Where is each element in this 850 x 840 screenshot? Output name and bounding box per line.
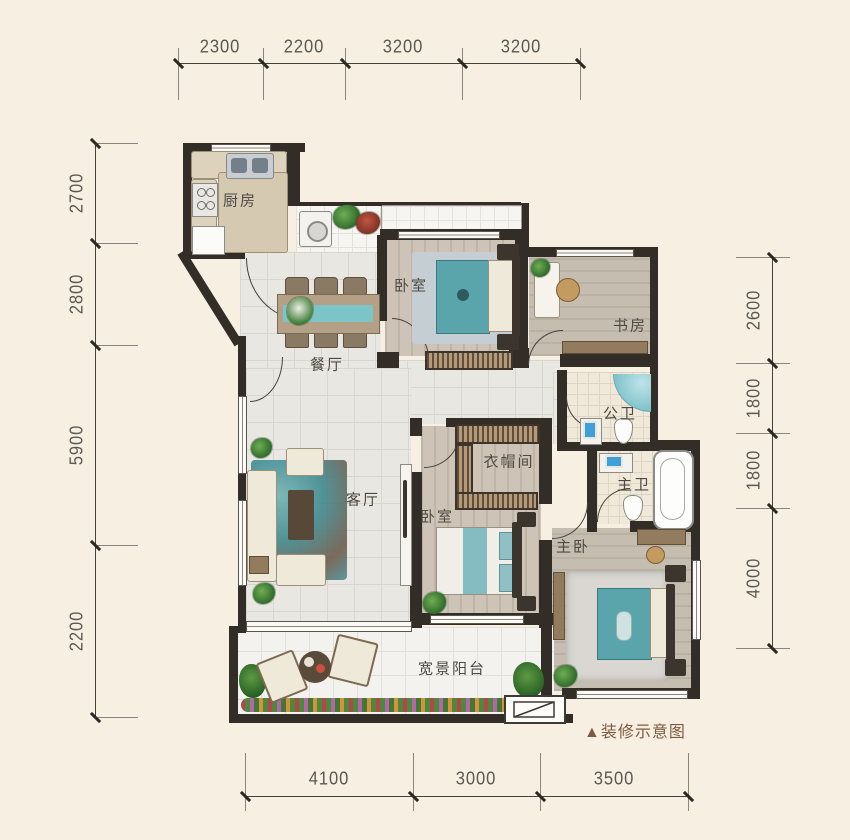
cloakroom-wardrobe-top xyxy=(455,424,540,444)
kitchen-fridge xyxy=(192,226,225,255)
master-bath-sink xyxy=(605,455,623,468)
dim-ext xyxy=(736,648,790,649)
dim-top-4: 3200 xyxy=(501,37,542,58)
dim-bottom-3: 3500 xyxy=(594,769,635,790)
guest-bath-sink xyxy=(583,421,597,439)
burner-icon xyxy=(206,201,215,210)
master-nightstand-top xyxy=(665,565,686,582)
caption-decoration-schematic: ▲装修示意图 xyxy=(584,718,686,742)
dim-ext xyxy=(580,48,581,100)
wall-right-upper xyxy=(650,247,658,447)
burner-icon xyxy=(206,188,215,197)
bedroom2-bed-runner xyxy=(463,528,487,594)
label-dining: 餐厅 xyxy=(310,354,344,375)
dim-ext xyxy=(736,257,790,258)
label-bedroom1: 卧室 xyxy=(394,275,428,296)
dining-chair xyxy=(314,277,338,295)
dim-ext xyxy=(413,753,414,811)
dim-ext xyxy=(736,363,790,364)
sink-basin-right xyxy=(252,158,268,173)
master-window-bottom xyxy=(576,690,688,699)
duct-symbol xyxy=(504,695,566,724)
dim-line-bottom xyxy=(245,796,688,797)
dim-bottom-1: 4100 xyxy=(309,769,350,790)
bedroom1-headboard xyxy=(512,256,520,336)
dim-right-2: 1800 xyxy=(744,378,765,419)
wall-bedroom2-master-a xyxy=(539,418,552,504)
balcony-plate-icon xyxy=(316,664,325,673)
label-living: 客厅 xyxy=(346,489,380,510)
cloakroom-wardrobe-bottom xyxy=(455,492,538,510)
dim-ext xyxy=(95,345,138,346)
label-guest-bath: 公卫 xyxy=(603,403,637,424)
bedroom1-bay-ledge xyxy=(381,205,522,232)
bedroom1-pillows xyxy=(488,260,514,332)
kitchen-island xyxy=(218,172,288,253)
dim-top-2: 2200 xyxy=(284,37,325,58)
kitchen-sink xyxy=(226,153,274,179)
dim-top-3: 3200 xyxy=(383,37,424,58)
bedroom2-nightstand-bottom xyxy=(517,596,536,611)
wall-masterbath-left xyxy=(587,450,597,530)
dining-chair xyxy=(343,277,367,295)
dim-left-2: 2800 xyxy=(67,274,88,315)
dining-chair xyxy=(285,277,309,295)
master-headboard xyxy=(666,584,675,662)
label-cloakroom: 衣帽间 xyxy=(483,451,534,472)
dim-right-1: 2600 xyxy=(744,290,765,331)
bathtub xyxy=(653,450,694,530)
master-window-right xyxy=(692,560,701,640)
bedroom2-window xyxy=(430,615,524,624)
bedroom2-bed xyxy=(436,527,516,595)
dim-right-4: 4000 xyxy=(744,558,765,599)
dim-ext xyxy=(245,753,246,811)
burner-icon xyxy=(197,201,206,210)
dim-line-right xyxy=(772,257,773,648)
dim-line-left xyxy=(95,143,96,717)
master-bed xyxy=(597,588,652,660)
coffee-table xyxy=(288,490,314,540)
dim-ext xyxy=(95,717,138,718)
wall-service-top xyxy=(296,202,382,206)
bedroom2-pillow xyxy=(499,532,513,560)
living-window-1 xyxy=(238,396,247,474)
dim-left-3: 5900 xyxy=(67,425,88,466)
label-study: 书房 xyxy=(613,315,647,336)
study-window xyxy=(556,249,634,257)
label-balcony: 宽景阳台 xyxy=(418,658,486,679)
wall-masterbath-bottom-a xyxy=(587,521,597,532)
dim-ext xyxy=(95,545,138,546)
bedroom1-nightstand-bottom xyxy=(497,334,519,350)
dim-ext xyxy=(95,143,138,144)
dim-ext xyxy=(462,48,463,100)
wall-diagonal xyxy=(177,250,242,346)
dim-ext xyxy=(95,243,138,244)
master-bed-accent xyxy=(616,611,632,641)
washer-drum-icon xyxy=(307,221,328,242)
living-side-table xyxy=(249,556,269,574)
dim-left-4: 2200 xyxy=(67,611,88,652)
living-armchair-bottom xyxy=(276,554,326,586)
dim-bottom-2: 3000 xyxy=(456,769,497,790)
washing-machine xyxy=(299,211,332,247)
balcony-flowerbed xyxy=(241,698,549,712)
bedroom1-bed xyxy=(436,260,490,334)
balcony-plate-icon xyxy=(304,657,314,667)
balcony-bush-right xyxy=(513,662,544,698)
wall-living-left xyxy=(238,336,246,633)
bathtub-inner xyxy=(660,458,685,520)
label-kitchen: 厨房 xyxy=(223,190,257,211)
kitchen-stove xyxy=(192,183,218,217)
balcony-table xyxy=(299,651,331,683)
bed-pillow-accent xyxy=(457,289,469,301)
dim-top-1: 2300 xyxy=(200,37,241,58)
dim-ext xyxy=(688,753,689,811)
master-tv-console xyxy=(553,572,565,640)
tv-icon xyxy=(403,480,407,538)
wall-bedroom2-left-a xyxy=(410,418,422,436)
master-dresser xyxy=(637,529,686,545)
dim-right-3: 1800 xyxy=(744,450,765,491)
bedroom1-window xyxy=(398,231,500,239)
wall-kitchen-right xyxy=(287,143,300,206)
wall-study-bottom xyxy=(560,354,658,367)
dim-ext xyxy=(263,48,264,100)
burner-icon xyxy=(197,188,206,197)
label-master-bath: 主卫 xyxy=(617,474,651,495)
dim-ext xyxy=(736,508,790,509)
dim-ext xyxy=(178,48,179,100)
label-master-bedroom: 主卧 xyxy=(556,536,590,557)
sink-basin-left xyxy=(231,158,247,173)
duct-diagonal-icon xyxy=(506,697,564,722)
cloakroom-wardrobe-left xyxy=(455,444,473,497)
balcony-sliding-door xyxy=(246,621,412,632)
dim-line-top xyxy=(178,63,580,64)
master-dresser-chair xyxy=(646,546,665,564)
dim-ext xyxy=(345,48,346,100)
bedroom2-headboard xyxy=(512,522,522,598)
study-sideboard xyxy=(562,341,648,354)
dim-left-1: 2700 xyxy=(67,173,88,214)
floor-plan: 厨房 卧室 书房 餐厅 公卫 衣帽间 主卫 客厅 卧室 主卧 宽景阳台 ▲装修示… xyxy=(0,0,850,840)
dim-ext xyxy=(540,753,541,811)
bedroom1-wardrobe xyxy=(425,351,513,370)
dim-ext xyxy=(736,433,790,434)
study-chair xyxy=(556,278,580,302)
living-armchair-top xyxy=(286,448,324,476)
wall-balcony-left xyxy=(229,626,238,723)
label-bedroom2: 卧室 xyxy=(420,506,454,527)
living-window-2 xyxy=(238,500,247,586)
bedroom2-pillow xyxy=(499,564,513,592)
wall-guestbath-left xyxy=(557,370,567,450)
